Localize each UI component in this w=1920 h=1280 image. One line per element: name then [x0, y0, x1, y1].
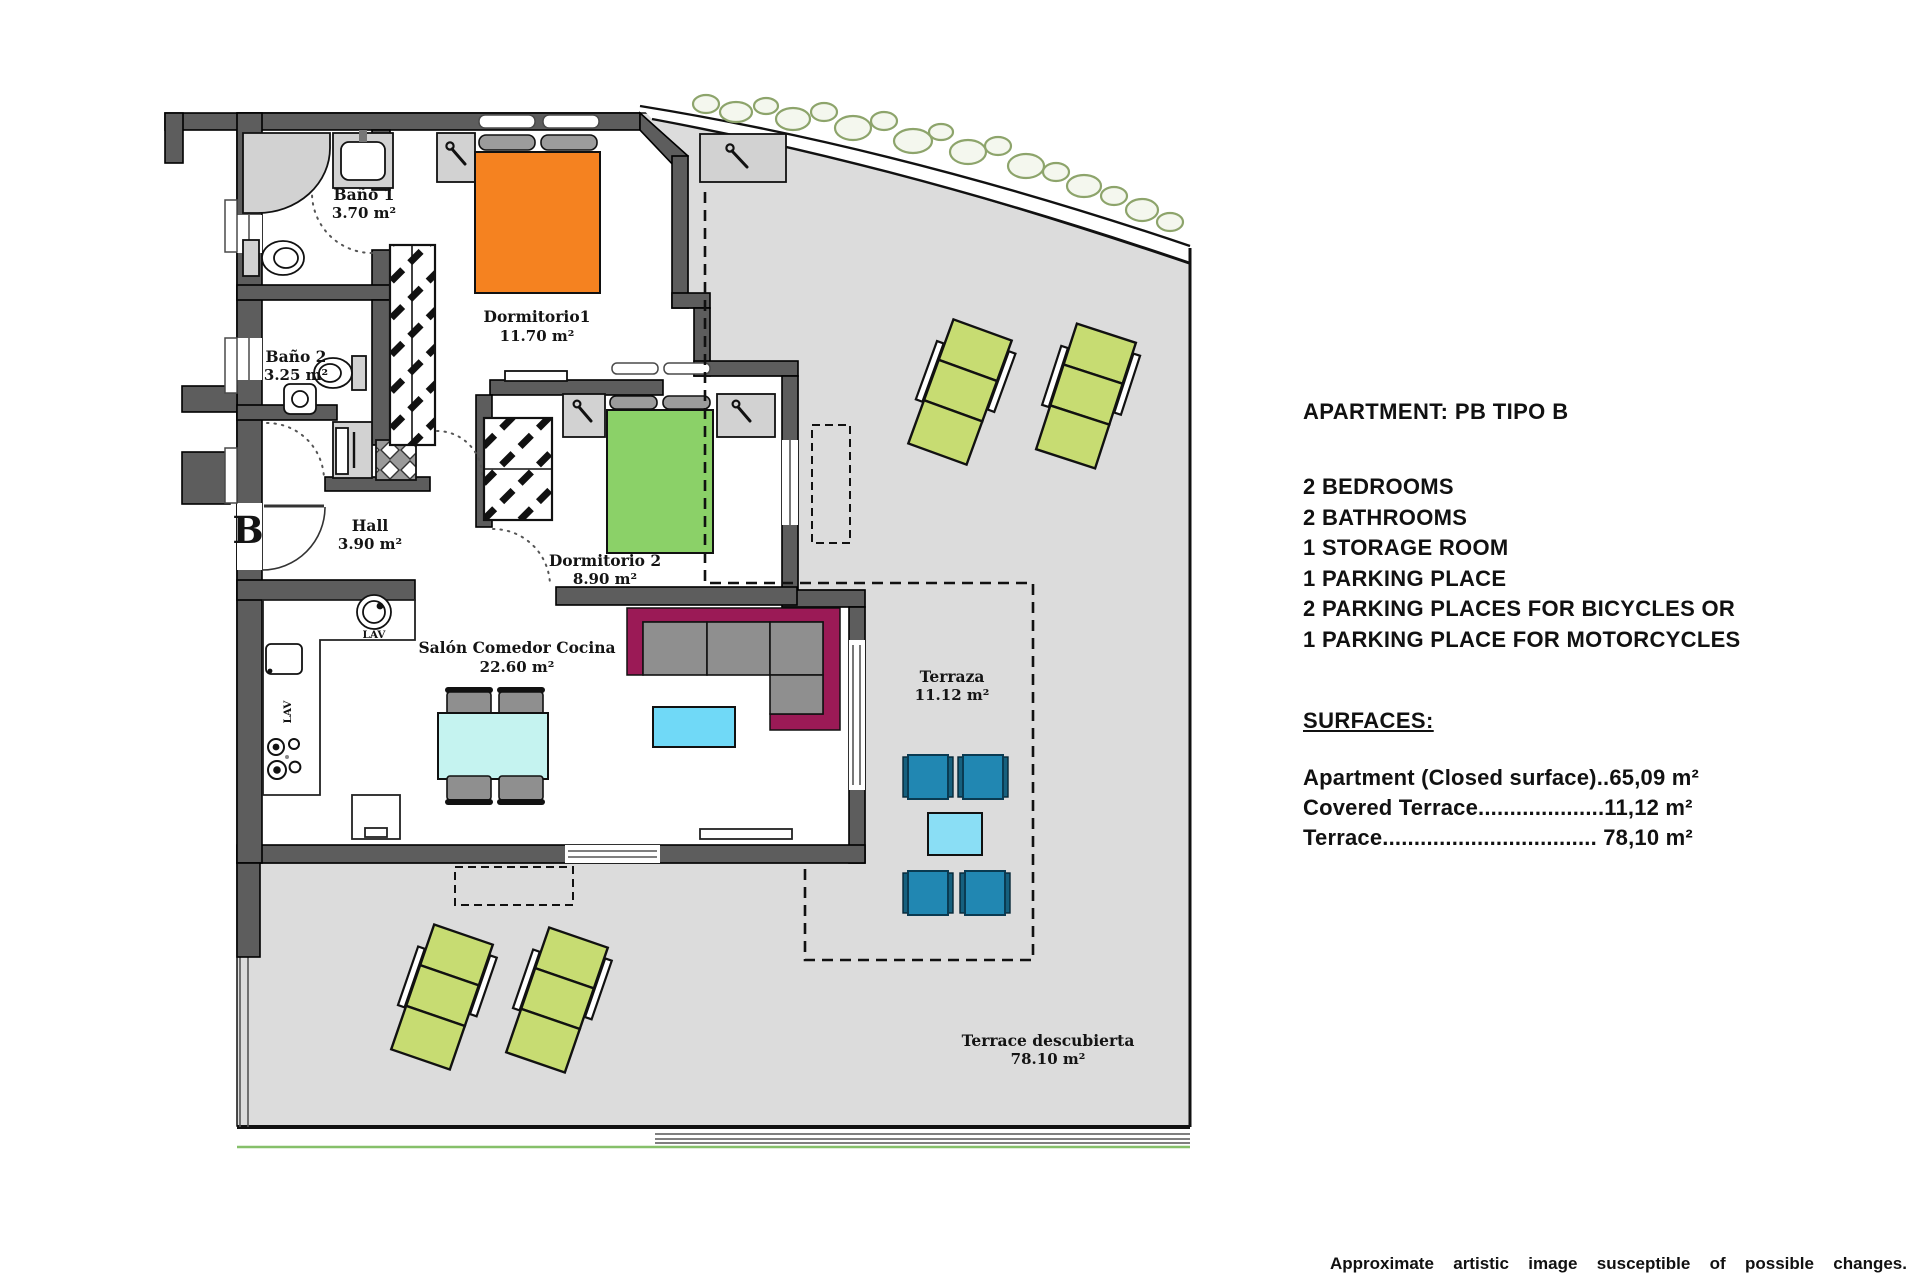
surfaces-heading: SURFACES:	[1303, 708, 1903, 734]
label-bano1-area: 3.70 m²	[332, 204, 396, 222]
label-terraza-name: Terraza	[920, 667, 985, 686]
label-bano1-name: Baño 1	[334, 185, 395, 204]
label-bano2-name: Baño 2	[266, 347, 327, 366]
feature-bathrooms: 2 BATHROOMS	[1303, 503, 1903, 534]
feature-storage: 1 STORAGE ROOM	[1303, 533, 1903, 564]
apartment-title: APARTMENT: PB TIPO B	[1303, 399, 1903, 425]
feature-list: 2 BEDROOMS 2 BATHROOMS 1 STORAGE ROOM 1 …	[1303, 472, 1903, 656]
label-bano2-area: 3.25 m²	[264, 366, 328, 384]
feature-motorcycle: 1 PARKING PLACE FOR MOTORCYCLES	[1303, 625, 1903, 656]
washer-label: LAV	[363, 629, 387, 641]
terrace-chair	[958, 755, 1008, 799]
disclaimer-text: Approximate artistic image susceptible o…	[1330, 1254, 1907, 1274]
feature-bedrooms: 2 BEDROOMS	[1303, 472, 1903, 503]
dishwasher-label: LAV	[282, 700, 294, 724]
terrace-chair	[903, 755, 953, 799]
coffee-table	[653, 707, 735, 747]
terrace-chair	[903, 871, 953, 915]
terrace-table	[928, 813, 982, 855]
label-salon-name: Salón Comedor Cocina	[418, 638, 615, 657]
toilet-icon	[352, 356, 366, 390]
bench	[700, 829, 792, 839]
surface-terrace: Terrace.................................…	[1303, 823, 1903, 853]
label-hall-name: Hall	[352, 516, 389, 535]
page: { "plan": { "unit_label": "B", "rooms": …	[0, 0, 1920, 1280]
toilet-icon	[243, 240, 259, 276]
unit-letter: B	[232, 508, 263, 552]
label-terrace-desc-name: Terrace descubierta	[962, 1031, 1135, 1050]
feature-bicycles: 2 PARKING PLACES FOR BICYCLES OR	[1303, 594, 1903, 625]
dining-table	[438, 713, 548, 779]
terrace-chair	[960, 871, 1010, 915]
surfaces-list: Apartment (Closed surface)..65,09 m² Cov…	[1303, 763, 1903, 854]
label-dorm2-area: 8.90 m²	[573, 570, 637, 588]
label-terraza-area: 11.12 m²	[915, 686, 990, 704]
feature-parking: 1 PARKING PLACE	[1303, 564, 1903, 595]
utility-box	[700, 134, 786, 182]
label-hall-area: 3.90 m²	[338, 535, 402, 553]
surface-apartment: Apartment (Closed surface)..65,09 m²	[1303, 763, 1903, 793]
info-panel: APARTMENT: PB TIPO B 2 BEDROOMS 2 BATHRO…	[1303, 399, 1903, 854]
surface-covered-terrace: Covered Terrace....................11,12…	[1303, 793, 1903, 823]
label-dorm2-name: Dormitorio 2	[549, 551, 661, 570]
label-salon-area: 22.60 m²	[480, 658, 555, 676]
label-dorm1-area: 11.70 m²	[500, 327, 575, 345]
label-dorm1-name: Dormitorio1	[484, 307, 591, 326]
label-terrace-desc-area: 78.10 m²	[1011, 1050, 1086, 1068]
